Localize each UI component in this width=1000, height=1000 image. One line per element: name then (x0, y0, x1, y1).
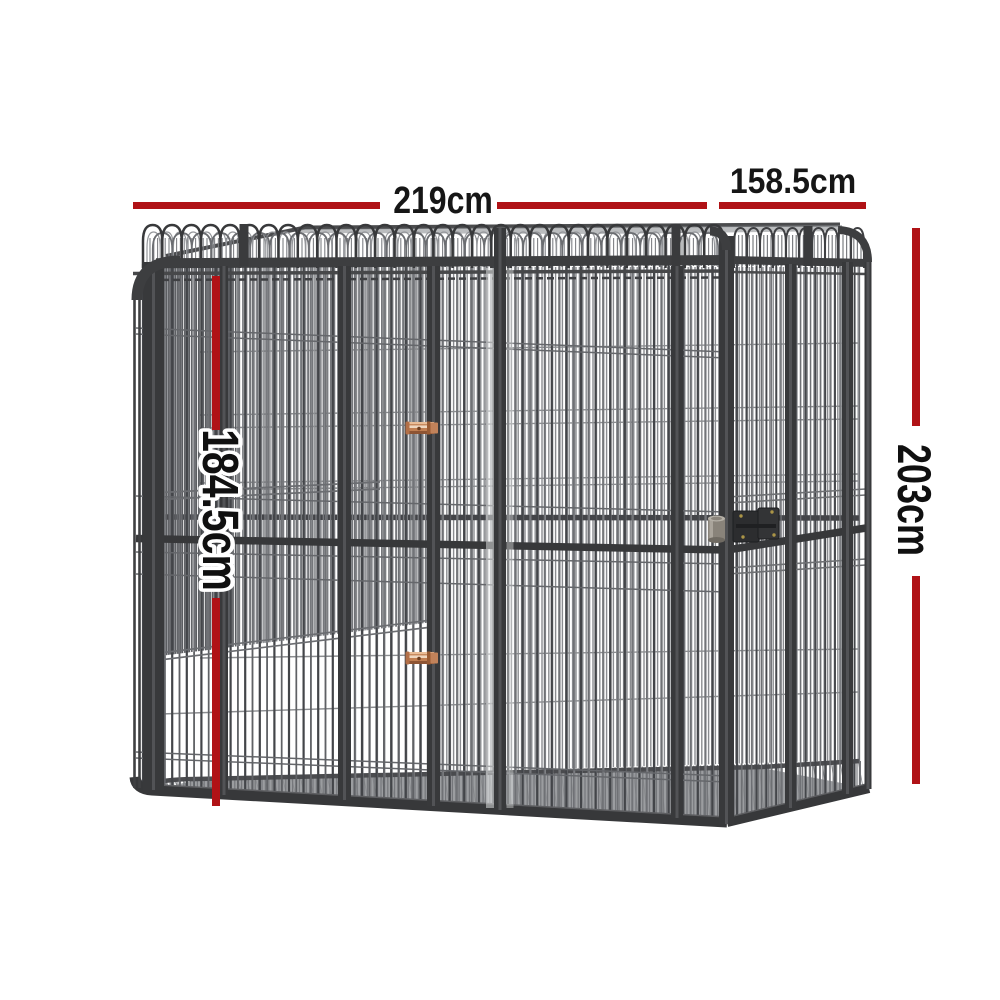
svg-text:184.5cm: 184.5cm (192, 429, 249, 591)
svg-text:219cm: 219cm (393, 180, 493, 222)
svg-text:158.5cm: 158.5cm (730, 163, 856, 202)
svg-text:203cm: 203cm (888, 444, 941, 556)
